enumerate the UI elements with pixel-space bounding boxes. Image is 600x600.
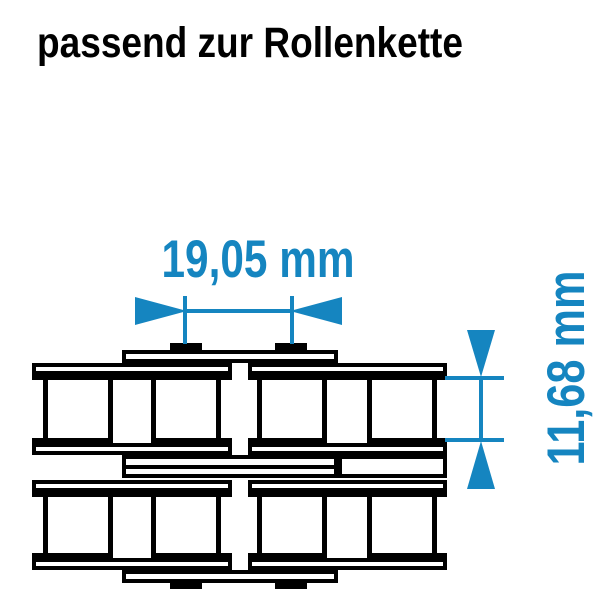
extension-line — [290, 296, 294, 344]
plate-edge — [32, 553, 113, 558]
roller-dimension: 11,68 mm — [445, 271, 596, 490]
dimension-line — [185, 309, 292, 313]
roller-edge — [257, 375, 262, 443]
roller-edge — [43, 375, 48, 443]
roller-dimension-label: 11,68 mm — [537, 271, 596, 466]
outer-link-plate — [34, 560, 230, 568]
roller-edge — [216, 492, 221, 558]
plate-edge — [151, 553, 232, 558]
outer-link-plate — [34, 445, 230, 453]
roller-edge — [151, 375, 156, 443]
roller — [257, 492, 327, 558]
intermediate-plates — [124, 457, 445, 476]
intermediate-plate — [340, 457, 445, 476]
extension-line — [445, 438, 504, 442]
outer-link-plate — [250, 365, 445, 373]
roller-edge — [257, 492, 262, 558]
pitch-dimension-label: 19,05 mm — [162, 230, 355, 289]
outer-link-plate — [250, 482, 445, 490]
roller — [43, 492, 113, 558]
pin — [172, 345, 200, 349]
plate-edge — [32, 375, 232, 380]
roller-edge — [322, 492, 327, 558]
pin — [172, 584, 200, 587]
roller-edge — [367, 375, 372, 443]
roller-edge — [367, 492, 372, 558]
left-arrowhead — [135, 297, 187, 325]
plate-edge — [151, 438, 232, 443]
bottom-arrowhead — [467, 441, 495, 489]
inner-link-plate — [124, 572, 336, 581]
inner-link-plate — [124, 352, 336, 361]
outer-link-plate — [250, 560, 445, 568]
outer-link-plate — [34, 365, 230, 373]
outer-link-plate — [250, 445, 445, 453]
plate-edge — [248, 375, 447, 380]
pin — [277, 345, 305, 349]
top-arrowhead — [467, 330, 495, 377]
roller-edge — [216, 375, 221, 443]
chain-drawing — [32, 345, 447, 587]
roller-chain-diagram: passend zur Rollenkette — [0, 0, 600, 600]
right-arrowhead — [290, 297, 342, 325]
dimension-line — [479, 378, 483, 440]
roller-edge — [108, 375, 113, 443]
plate-edge — [32, 492, 232, 497]
diagram-canvas: passend zur Rollenkette — [0, 0, 600, 600]
roller — [151, 492, 221, 558]
extension-line — [183, 296, 187, 344]
plate-edge — [367, 438, 447, 443]
page-title: passend zur Rollenkette — [37, 19, 463, 67]
outer-link-plate — [34, 482, 230, 490]
roller-edge — [432, 375, 437, 443]
plate-split-line — [124, 465, 336, 469]
bottom-strand — [32, 482, 447, 587]
roller-edge — [43, 492, 48, 558]
extension-line — [445, 376, 504, 380]
plate-edge — [32, 438, 113, 443]
roller-edge — [108, 492, 113, 558]
roller — [367, 492, 437, 558]
pin — [277, 584, 305, 587]
roller — [43, 375, 113, 443]
roller-edge — [322, 375, 327, 443]
roller — [257, 375, 327, 443]
roller-edge — [151, 492, 156, 558]
pitch-dimension: 19,05 mm — [135, 230, 355, 344]
roller-edge — [432, 492, 437, 558]
roller — [151, 375, 221, 443]
plate-edge — [367, 553, 447, 558]
top-strand — [32, 345, 447, 453]
plate-edge — [248, 438, 327, 443]
roller — [367, 375, 437, 443]
plate-edge — [248, 553, 327, 558]
plate-edge — [248, 492, 447, 497]
